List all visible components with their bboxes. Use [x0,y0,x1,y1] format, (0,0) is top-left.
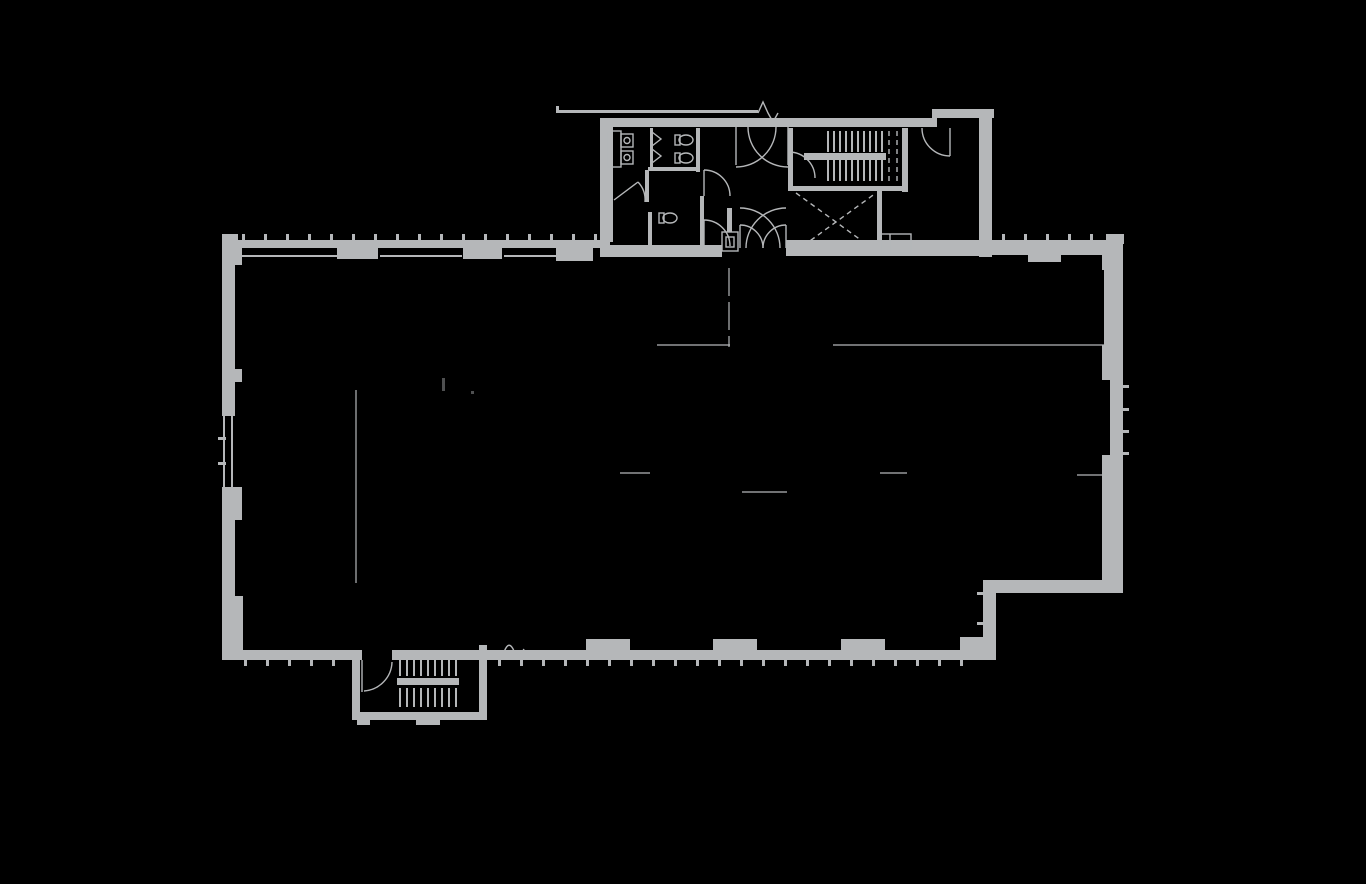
west-window-glazing [218,416,233,487]
door-swing [362,660,392,692]
sink [621,151,633,164]
window-mullion-tick [630,660,633,666]
window-mullion-tick [1024,234,1027,240]
canopy-line [556,110,758,113]
floor-plan-drawing [0,0,1366,884]
window-mullion-tick [784,660,787,666]
window-mullion-tick [242,234,245,240]
door-swing [614,182,645,202]
north-stairwell [788,128,908,192]
interior-partition-lines [356,268,1108,583]
east-room-door [922,128,950,156]
window-mullion-tick [828,660,831,666]
sink [621,134,633,147]
window-mullion-tick [894,660,897,666]
window-mullion-tick [608,660,611,666]
toilet [675,135,693,145]
window-mullion-tick [938,660,941,666]
toilet [675,153,693,163]
door-swing [922,128,950,156]
window-mullion-tick [674,660,677,666]
foundation-tab [357,720,370,725]
stair-landing [397,678,459,685]
window-mullion-tick [850,660,853,666]
window-mullion-tick [1090,234,1093,240]
floor-plan-canvas [0,0,1366,884]
north-core-walls [556,102,994,257]
stall-door [652,149,661,163]
window-mullion-tick [594,234,597,240]
window-mullion-tick [550,234,553,240]
foundation-tab [416,720,440,725]
window-mullion-tick [520,660,523,666]
window-mullion-tick [564,660,567,666]
window-mullion-tick [308,234,311,240]
outer-walls [218,234,1129,660]
window-mullion-tick [696,660,699,666]
toilet [659,213,677,223]
door-swing [704,170,730,196]
pilaster [841,639,885,650]
double-door-swing-upper [736,127,788,248]
window-mullion-tick [332,660,335,666]
window-mullion-tick [264,234,267,240]
window-mullion-tick [762,660,765,666]
pilaster [713,639,757,650]
window-mullion-tick [572,234,575,240]
pilaster [1028,255,1061,262]
pilaster [463,248,502,259]
illegible-mark [471,391,474,394]
window-mullion-tick [652,660,655,666]
window-mullion-tick [506,234,509,240]
window-mullion-tick [586,660,589,666]
window-mullion-tick [286,234,289,240]
stall-door [652,132,661,146]
window-mullion-tick [352,234,355,240]
window-mullion-tick [266,660,269,666]
window-mullion-tick [498,660,501,666]
window-mullion-tick [1046,234,1049,240]
window-mullion-tick [484,234,487,240]
window-mullion-tick [330,234,333,240]
stair-landing [804,153,886,160]
window-mullion-tick [440,234,443,240]
window-mullion-tick [374,234,377,240]
window-mullion-tick [1002,234,1005,240]
illegible-mark [442,378,445,391]
window-mullion-tick [542,660,545,666]
pilaster [586,639,630,650]
window-mullion-tick [806,660,809,666]
window-mullion-tick [1112,234,1115,240]
window-mullion-tick [718,660,721,666]
window-mullion-tick [310,660,313,666]
window-mullion-tick [396,234,399,240]
pilaster [556,248,593,261]
window-mullion-tick [872,660,875,666]
restrooms [607,128,730,248]
window-mullion-tick [1068,234,1071,240]
window-mullion-tick [244,660,247,666]
window-mullion-tick [418,234,421,240]
window-mullion-tick [462,234,465,240]
window-mullion-tick [916,660,919,666]
window-mullion-tick [288,660,291,666]
pilaster [337,248,378,259]
window-mullion-tick [528,234,531,240]
window-mullion-tick [960,660,963,666]
window-mullion-tick [740,660,743,666]
